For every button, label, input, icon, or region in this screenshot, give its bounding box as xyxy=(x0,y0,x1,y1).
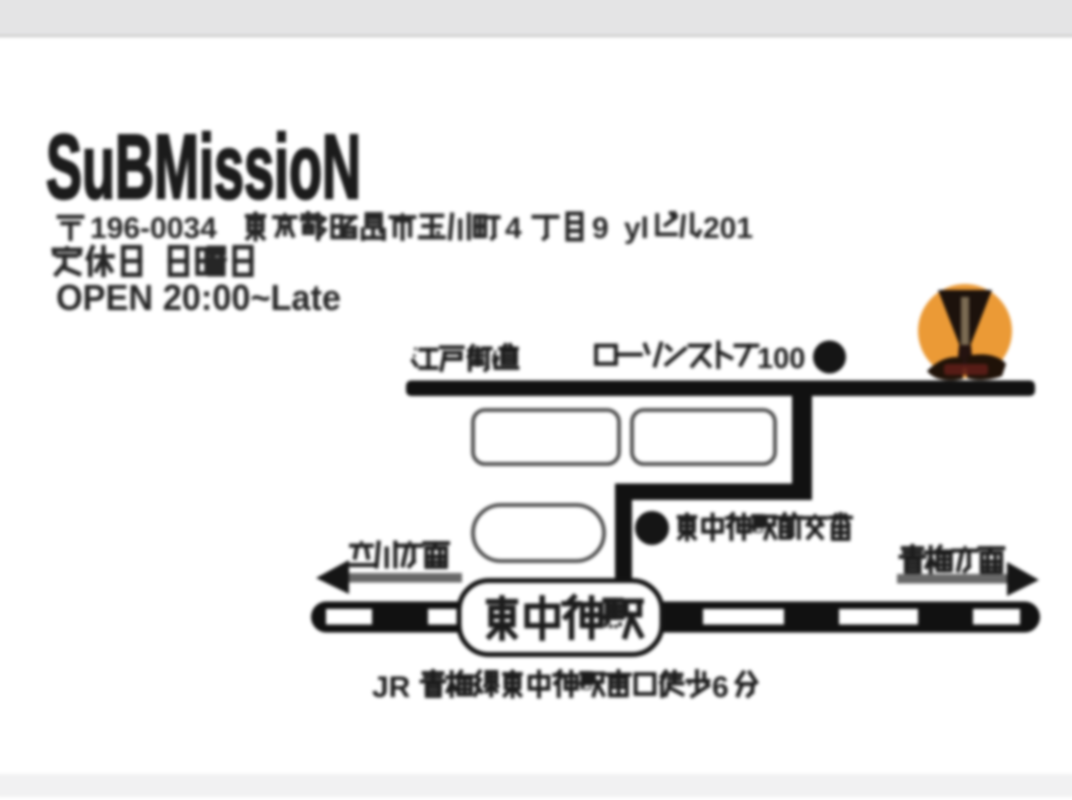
svg-text:JR: JR xyxy=(372,671,411,704)
svg-text:100: 100 xyxy=(757,343,805,375)
svg-text:4: 4 xyxy=(505,212,522,245)
svg-text:9: 9 xyxy=(592,212,609,245)
svg-text:196-0034: 196-0034 xyxy=(90,212,217,245)
svg-text:yl: yl xyxy=(624,212,649,245)
svg-text:OPEN 20:00~Late: OPEN 20:00~Late xyxy=(56,277,341,318)
svg-text:6: 6 xyxy=(712,671,729,704)
svg-text:SuBMissioN: SuBMissioN xyxy=(46,117,361,218)
svg-text:201: 201 xyxy=(703,212,753,245)
